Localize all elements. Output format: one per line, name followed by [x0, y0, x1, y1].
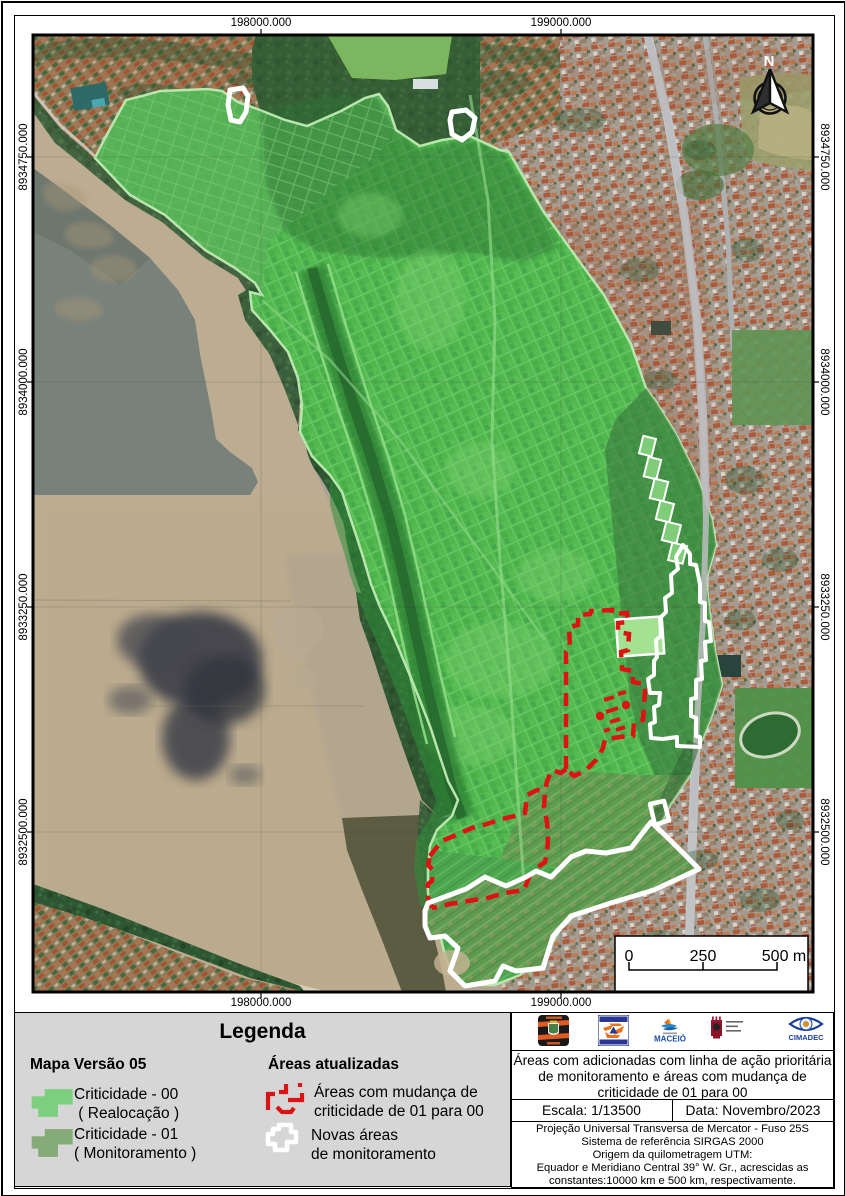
svg-text:CIMADEC: CIMADEC: [789, 1033, 825, 1042]
svg-text:MACEIÓ: MACEIÓ: [654, 1035, 686, 1044]
